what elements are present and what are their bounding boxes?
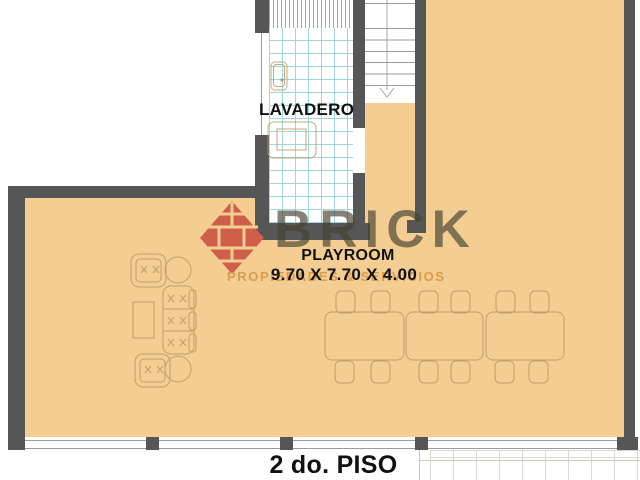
lavadero-label: LAVADERO <box>259 100 354 120</box>
table-icon <box>325 312 564 360</box>
sink-icon <box>271 62 287 90</box>
washing-machine-icon <box>268 122 316 158</box>
armchair-icon <box>131 254 166 287</box>
side-table-icon <box>165 257 191 283</box>
floor-plan: BRICK PROPIEDADES & SERVICIOS LAVADERO P… <box>0 0 640 480</box>
side-table-icon <box>165 356 191 382</box>
sofa-icon <box>163 286 196 354</box>
stair-down-arrow-icon <box>380 0 394 97</box>
playroom-dimensions: 9.70 X 7.70 X 4.00 <box>254 265 434 285</box>
page-title: 2 do. PISO <box>246 451 421 480</box>
playroom-label: PLAYROOM <box>288 247 408 265</box>
chair-icon <box>335 291 549 383</box>
coffee-table-icon <box>133 302 154 338</box>
